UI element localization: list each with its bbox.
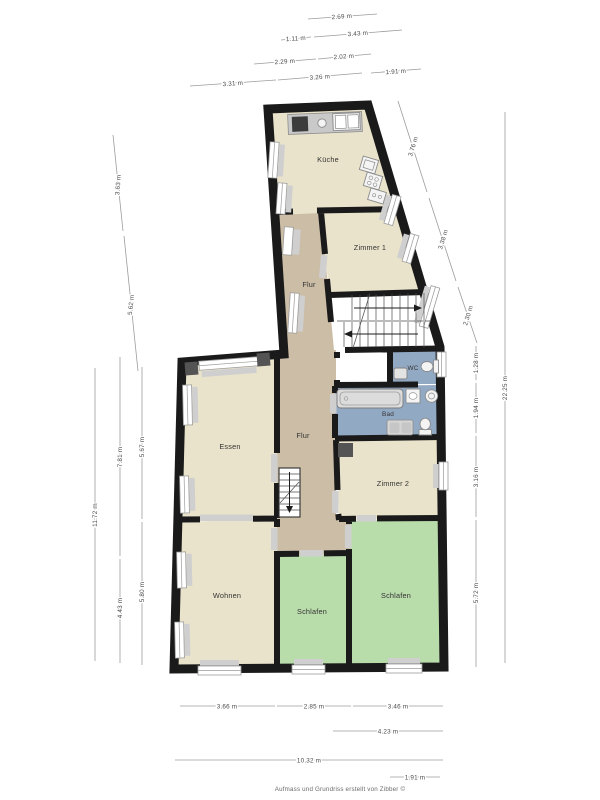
kitchen-fixtures	[288, 112, 363, 135]
dimension-label: 1.28 m	[473, 353, 480, 373]
dimension-label: 3.76 m	[407, 136, 420, 158]
dimension-label: 3.63 m	[114, 174, 122, 195]
dimension-label: 11.72 m	[92, 503, 99, 527]
dimension-label: 3.46 m	[388, 704, 408, 711]
dimension-label: 1.94 m	[473, 398, 480, 418]
dimension-label: 3.66 m	[217, 704, 237, 711]
dimension-label: 4.23 m	[378, 729, 398, 736]
label-wc: WC	[407, 365, 418, 372]
label-zimmer1: Zimmer 1	[354, 243, 386, 252]
dimension-label: 3.16 m	[473, 467, 480, 487]
dimensions-left: 3.63 m 5.62 m 11.72 m 7.81 m 4.43 m 5.67…	[92, 135, 146, 665]
label-schlafen-right: Schlafen	[381, 591, 411, 600]
dimension-label: 3.38 m	[437, 229, 450, 251]
dimension-label: 3.26 m	[309, 73, 330, 81]
dimension-label: 2.30 m	[462, 305, 475, 327]
dimensions-bottom: 3.66 m 2.85 m 3.46 m 4.23 m 10.32 m 1.91…	[175, 704, 443, 782]
dimension-label: 4.43 m	[117, 598, 124, 618]
label-bad: Bad	[382, 411, 394, 418]
washbasin-icon	[406, 389, 420, 403]
label-kueche: Küche	[317, 155, 339, 164]
stairs-down	[279, 468, 300, 517]
toilet-icon	[421, 360, 439, 373]
floorplan-drawing: Küche Zimmer 1 Flur WC Bad Essen Flur Zi…	[0, 0, 600, 800]
label-essen: Essen	[219, 442, 240, 451]
dimension-label: 2.85 m	[304, 704, 324, 711]
dimension-label: 7.81 m	[117, 447, 124, 467]
dimension-label: 10.32 m	[297, 758, 321, 765]
sink-icon	[318, 119, 327, 128]
label-flur-main: Flur	[296, 431, 310, 440]
dimension-label: 2.02 m	[333, 53, 354, 61]
dimensions-top: 2.69 m 1.11 m 3.43 m 2.29 m 2.02 m 3.31 …	[190, 13, 421, 88]
dimension-label: 22.25 m	[502, 376, 509, 400]
dimension-label: 1.11 m	[286, 35, 306, 43]
bathtub-icon	[337, 389, 403, 408]
footer-credit: Aufmass und Grundriss erstellt von Zibbe…	[275, 786, 406, 793]
floorplan-page: Küche Zimmer 1 Flur WC Bad Essen Flur Zi…	[0, 0, 600, 800]
room-vestibule	[337, 352, 390, 385]
dimension-label: 5.62 m	[127, 294, 136, 315]
dimension-label: 2.69 m	[331, 13, 352, 21]
dimension-label: 5.80 m	[139, 582, 146, 602]
label-wohnen: Wohnen	[213, 591, 241, 600]
dimension-label: 1.91 m	[385, 68, 406, 76]
label-zimmer2: Zimmer 2	[377, 479, 409, 488]
label-flur-top: Flur	[302, 280, 316, 289]
label-schlafen-mid: Schlafen	[297, 607, 327, 616]
dimension-label: 3.31 m	[222, 80, 243, 88]
dimension-label: 3.43 m	[347, 30, 368, 38]
washing-machine-icon	[425, 390, 437, 402]
dimension-label: 1.91 m	[405, 775, 425, 782]
hand-basin-icon	[394, 368, 407, 379]
vanity-icon	[387, 420, 413, 435]
dimension-label: 5.72 m	[473, 583, 480, 603]
dimension-label: 2.29 m	[274, 58, 295, 66]
stove-icon	[292, 116, 309, 132]
dimension-label: 5.67 m	[139, 437, 146, 457]
toilet-icon	[419, 418, 432, 435]
